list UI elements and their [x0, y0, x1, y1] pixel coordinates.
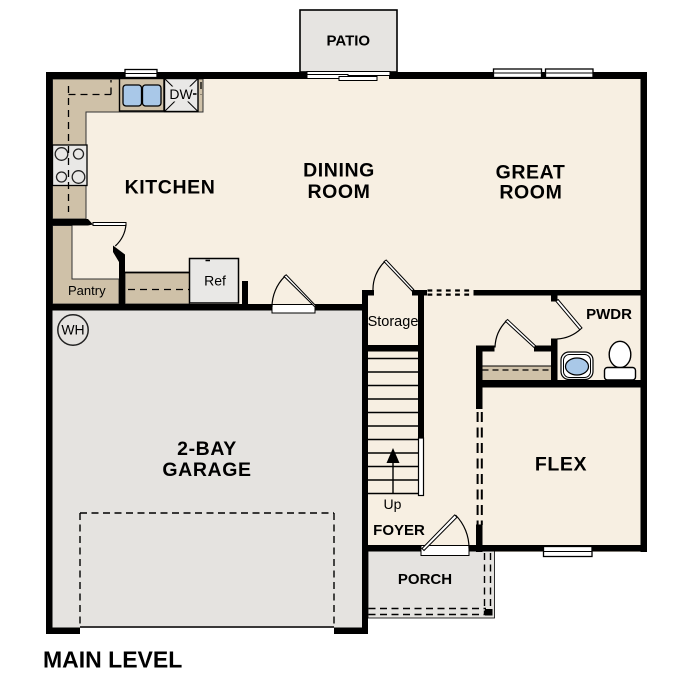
svg-text:FLEX: FLEX [535, 454, 587, 476]
svg-text:PWDR: PWDR [586, 306, 632, 323]
svg-text:DINING: DINING [303, 159, 375, 181]
svg-text:DW: DW [169, 86, 193, 102]
svg-text:Up: Up [384, 496, 402, 512]
svg-text:KITCHEN: KITCHEN [125, 176, 216, 198]
svg-text:ROOM: ROOM [499, 182, 562, 204]
svg-text:MAIN LEVEL: MAIN LEVEL [43, 647, 182, 673]
svg-text:GARAGE: GARAGE [162, 459, 251, 481]
svg-text:PORCH: PORCH [398, 571, 452, 588]
svg-text:PATIO: PATIO [326, 33, 370, 50]
svg-text:Pantry: Pantry [68, 283, 106, 298]
svg-text:FOYER: FOYER [373, 522, 425, 539]
svg-text:ROOM: ROOM [307, 181, 370, 203]
svg-text:GREAT: GREAT [496, 161, 566, 183]
svg-text:Ref: Ref [204, 273, 226, 289]
svg-text:Storage: Storage [368, 314, 419, 330]
svg-text:2-BAY: 2-BAY [177, 438, 237, 460]
svg-text:WH: WH [61, 322, 84, 338]
